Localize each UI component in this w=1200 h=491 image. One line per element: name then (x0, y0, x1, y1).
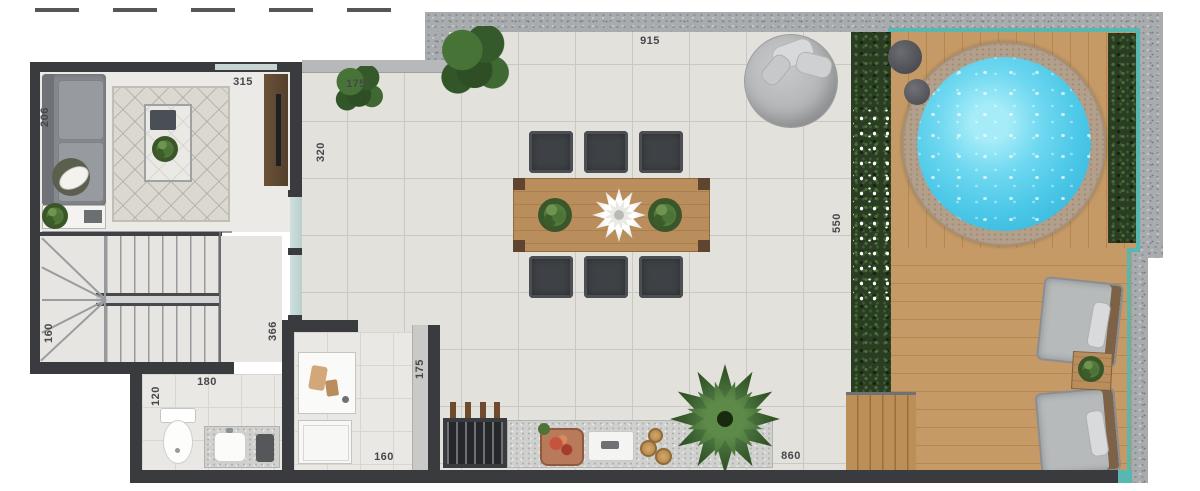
sofa-cushion (58, 80, 104, 140)
deck-table-plant (1078, 356, 1104, 382)
dining-chair (639, 256, 683, 298)
granite-right-wall-upper (1140, 12, 1163, 258)
dim-terrace-upper-left: 175 (341, 77, 371, 91)
wall-bottom (130, 470, 1118, 483)
cabinet-item (325, 379, 339, 397)
glass-rail-top (888, 28, 1140, 32)
toilet-bowl (163, 420, 193, 464)
property-dashed-line (35, 8, 405, 12)
glass-rail-bottom-corner (1118, 470, 1132, 483)
stairs-winder-line (42, 299, 106, 301)
plant-center (717, 411, 733, 427)
deck-wood-steps (846, 392, 916, 470)
hedge-flowers (853, 108, 889, 304)
bush-small (333, 66, 387, 118)
outside-area (302, 32, 425, 60)
dim-hall-wall-height: 366 (266, 316, 280, 346)
table-leg-cap (513, 178, 525, 190)
lounger-pillow (1085, 409, 1110, 457)
console-plant (42, 203, 68, 229)
dim-living-terrace-wall: 320 (314, 137, 328, 167)
wall-cap (288, 248, 302, 255)
stairs-side-line (219, 232, 221, 368)
dim-pool-deck-depth: 550 (830, 208, 844, 238)
flower-center (614, 210, 624, 220)
table-plant-left (538, 198, 572, 232)
table-leg-cap (698, 178, 710, 190)
table-leg-cap (513, 240, 525, 252)
bbq-ledge (412, 325, 429, 470)
bathroom-sink (214, 432, 246, 462)
dining-chair (639, 131, 683, 173)
pool-water-ripples (917, 57, 1091, 231)
faucet (226, 428, 233, 433)
window-top (215, 64, 277, 70)
dim-terrace-top-width: 915 (630, 34, 670, 48)
pouf-large (888, 40, 922, 74)
dim-stairs-width: 160 (42, 318, 56, 348)
coffee-table-tray (150, 110, 176, 130)
console-vent (84, 210, 102, 223)
dim-bathroom-width: 180 (192, 375, 222, 389)
cabinet-knob (342, 396, 349, 403)
wall-cap (288, 190, 302, 197)
tray-garnish (538, 423, 550, 435)
glass-rail-right-lower (1127, 252, 1131, 470)
glass-panel-hall (290, 253, 302, 315)
dim-bbq-wall-height: 175 (413, 354, 427, 384)
laundry-item (256, 434, 274, 462)
dining-chair (584, 131, 628, 173)
wall-living-terrace (290, 62, 302, 195)
wall-divider (282, 320, 294, 470)
lounger-pillow (1086, 301, 1112, 349)
granite-right-wall-lower (1132, 252, 1148, 483)
coffee-table-plant (152, 136, 178, 162)
dining-chair (529, 256, 573, 298)
dim-support-room-width: 160 (369, 450, 399, 464)
floor-plan-canvas: 915 315 175 206 320 160 120 180 366 175 … (0, 0, 1200, 491)
platter-handle (601, 441, 619, 449)
glass-door-terrace (290, 195, 302, 253)
dining-chair (584, 256, 628, 298)
dim-bathroom-depth: 120 (149, 381, 163, 411)
bbq-wall (428, 325, 440, 470)
dim-terrace-bottom-width: 860 (776, 449, 806, 463)
wall-support-top (282, 320, 358, 332)
stairs-upper-treads (106, 236, 220, 294)
dim-living-room-depth: 206 (38, 102, 52, 132)
table-leg-cap (698, 240, 710, 252)
stairs-mid-rail (96, 293, 220, 306)
table-plant-right (648, 198, 682, 232)
glass-rail-right-upper (1136, 28, 1140, 248)
tv-screen (276, 94, 281, 166)
cabinet-lower-door (303, 425, 349, 461)
pouf-small (904, 79, 930, 105)
table-centerpiece-flowers (592, 188, 646, 242)
lounge-chair-lower (1034, 387, 1121, 478)
bush-large (438, 26, 514, 106)
wall-hall-bottom (30, 362, 234, 374)
wall-bathroom-left (130, 374, 142, 483)
dim-living-room-width: 315 (228, 75, 258, 89)
potted-plant-large (670, 364, 780, 474)
dining-chair (529, 131, 573, 173)
bbq-grill (443, 418, 507, 468)
stairs-lower-treads (106, 306, 220, 364)
toilet-flush (175, 448, 180, 453)
hedge-planter-right (1108, 33, 1136, 243)
